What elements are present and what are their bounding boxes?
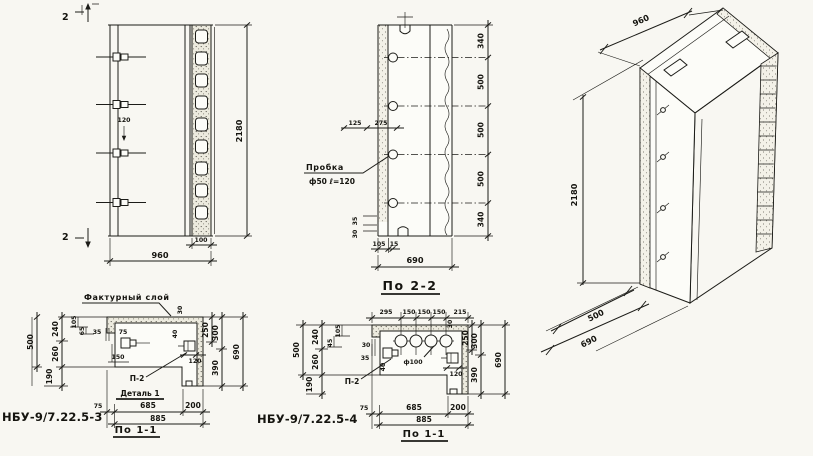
dim-text: 190: [45, 369, 54, 385]
dim-text: 240: [311, 329, 320, 345]
dim-text: 240: [51, 321, 60, 337]
dim-text: 75: [119, 329, 128, 336]
dim-text: 960: [151, 250, 168, 260]
bottom-notch: [186, 381, 192, 386]
dim-text: 150: [418, 309, 432, 316]
dim-text: 40: [172, 329, 179, 338]
dim-text: 2180: [569, 183, 579, 206]
dim-text: 295: [380, 309, 393, 316]
facade-layer-edge: [640, 68, 650, 288]
dim-text: 500: [477, 171, 486, 187]
dim-text: 120: [118, 117, 132, 124]
dim-text: 500: [477, 122, 486, 138]
dim-rib-100: 100: [186, 237, 217, 249]
dim-text: 390: [211, 360, 220, 376]
dim-chain-right: 340 500 500 500 340: [454, 20, 493, 241]
dim-text: 100: [195, 237, 209, 244]
dim-text: 690: [579, 333, 599, 350]
dim-text: 35: [93, 329, 102, 336]
dim-text: 65: [79, 327, 86, 336]
dim-text: 30: [177, 305, 184, 314]
drawing-canvas: 2 2 120 2180 100: [0, 0, 813, 456]
hollow-core-band: [756, 53, 778, 252]
dim-text: 685: [140, 401, 156, 410]
dim-text: 120: [189, 358, 203, 365]
dim-text: 500: [586, 307, 606, 324]
detail-ref: П-2: [345, 377, 360, 386]
iso-dim-height: 2180: [569, 60, 643, 286]
dim-text: 190: [305, 377, 314, 393]
dim-text: 500: [292, 342, 301, 358]
section-1-1-left: Фактурный слой 500 240 260 190 105: [2, 293, 248, 437]
dim-text: 30: [362, 342, 371, 349]
detail-label: Деталь 1: [120, 389, 159, 398]
plug-callout: Пробка ф50 ℓ=120: [304, 156, 389, 186]
core-voids: [196, 30, 208, 219]
section-cut-mark-top: 2: [62, 3, 99, 23]
dim-text: 390: [470, 367, 479, 383]
dim-step: 35 30: [352, 216, 377, 238]
anchor-hooks: [96, 53, 146, 207]
dim-text: 150: [433, 309, 447, 316]
dim-text: 2180: [234, 119, 244, 142]
dim-text: 125: [349, 120, 362, 127]
facade-label: Фактурный слой: [84, 293, 170, 302]
detail-ref: П-2: [130, 374, 145, 383]
iso-dim-depth: 500 690: [541, 286, 688, 355]
dim-text: 35: [361, 355, 370, 362]
dim-text: 260: [311, 354, 320, 370]
dim-text: 685: [406, 403, 422, 412]
dim-text: 250: [201, 322, 210, 338]
dim-text: 120: [450, 371, 464, 378]
dim-text: 150: [112, 354, 126, 361]
dim-text: 500: [26, 334, 35, 350]
dim-text: 105: [71, 316, 78, 329]
facade-callout: Фактурный слой: [82, 293, 171, 316]
dim-text: 300: [211, 325, 220, 341]
dim-text: 960: [631, 12, 651, 28]
dim-text: 500: [477, 74, 486, 90]
dim-text: 300: [470, 333, 479, 349]
section-2-2-view: 340 500 500 500 340 125 275 Пробка ф50 ℓ…: [304, 12, 493, 294]
dim-text: 340: [477, 212, 486, 228]
dim-text: 340: [477, 33, 486, 49]
dim-text: 30: [352, 229, 359, 238]
dim-text: 15: [390, 241, 399, 248]
dim-text: 75: [360, 405, 369, 412]
dim-text: 690: [406, 255, 423, 265]
embed-anchor-left: [383, 348, 398, 358]
isometric-view: 2180 960 500 690: [541, 8, 778, 355]
dim-text: 105: [373, 241, 386, 248]
dim-text: 250: [461, 330, 470, 346]
dim-text: 885: [416, 415, 432, 424]
dim-text: 105: [335, 325, 342, 338]
blueprint-sheet: 2 2 120 2180 100: [0, 0, 813, 456]
dim-text: 45: [327, 339, 334, 348]
part-number: НБУ-9/7.22.5-4: [257, 412, 358, 426]
plug-label: Пробка: [306, 162, 344, 172]
part-number: НБУ-9/7.22.5-3: [2, 410, 103, 424]
section-1-1-title: По 1-1: [403, 429, 446, 440]
dim-anchor-120: 120: [118, 117, 132, 141]
dim-text: 30: [447, 319, 454, 328]
dim-text: 150: [403, 309, 417, 316]
hole-label: ф100: [403, 358, 423, 366]
section-cut-mark-bottom: 2: [62, 228, 91, 248]
dim-bottom: 105 15 690: [371, 238, 459, 271]
section-mark-label: 2: [62, 232, 69, 243]
dim-text: 690: [232, 344, 241, 360]
front-elevation-view: 2 2 120 2180 100: [62, 3, 252, 266]
dim-text: 885: [150, 414, 166, 423]
dim-text: 200: [185, 401, 201, 410]
plug-spec: ф50 ℓ=120: [309, 177, 355, 186]
section-1-1-title: По 1-1: [115, 425, 158, 436]
section-1-1-right: ф100 295 150 150 150 215 30: [257, 309, 510, 441]
dim-text: 260: [51, 346, 60, 362]
dim-text: 200: [450, 403, 466, 412]
dim-text: 75: [94, 403, 103, 410]
dim-text: 690: [494, 352, 503, 368]
dim-chain-left: 500 240 260 190 105 65: [26, 312, 115, 391]
section-mark-label: 2: [62, 12, 69, 23]
dim-text: 35: [352, 217, 359, 226]
section-2-2-title: По 2-2: [383, 278, 438, 293]
dim-chain-right: 250 300 390 690: [197, 312, 248, 391]
bottom-notch: [450, 389, 457, 394]
dim-text: 215: [454, 309, 467, 316]
dim-height-2180: 2180: [215, 22, 252, 238]
dim-text: 275: [375, 120, 388, 127]
